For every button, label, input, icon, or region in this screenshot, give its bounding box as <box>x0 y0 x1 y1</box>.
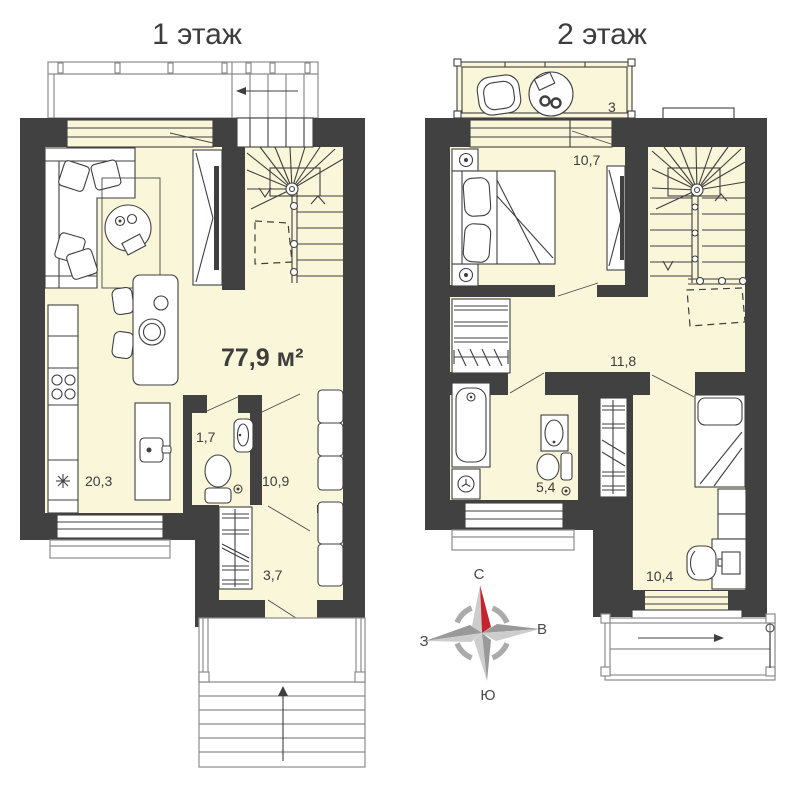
armchair-icon <box>476 73 523 116</box>
room-label-kitchen-living: 20,3 <box>85 473 112 489</box>
tv-unit-floor2-icon <box>607 166 625 270</box>
kitchen-island-icon <box>135 403 171 500</box>
closet-icon-floor2 <box>600 398 627 497</box>
floorplan-page: 1 этаж <box>0 0 800 791</box>
desk-chair-icon <box>687 546 716 580</box>
compass-label-east: В <box>537 621 547 638</box>
shelf-icon <box>718 489 746 539</box>
balcony-table-icon <box>529 72 573 116</box>
room-label-hall-floor1: 10,9 <box>262 473 289 489</box>
porch-steps <box>199 618 365 767</box>
nightstand-icon-2 <box>452 264 478 286</box>
hall-closet-icon <box>318 390 343 586</box>
desk-icon <box>712 539 746 589</box>
fridge-icon <box>56 474 70 488</box>
balcony-bottom-floor2 <box>601 614 775 680</box>
floor1-title: 1 этаж <box>152 18 242 51</box>
compass-label-north: С <box>474 566 485 583</box>
room-label-balcony: 3 <box>608 99 616 115</box>
room-label-bedroom-bottom: 10,4 <box>646 568 673 584</box>
room-label-closet-floor1: 3,7 <box>263 567 283 583</box>
washing-machine-icon <box>452 469 480 499</box>
compass-label-west: З <box>419 633 428 650</box>
window-kitchen-bottom <box>50 515 170 558</box>
terrace-floor1 <box>48 62 318 118</box>
nightstand-icon-1 <box>452 149 478 171</box>
hall-wardrobe-icon <box>452 299 510 373</box>
floor2-title: 2 этаж <box>557 18 647 51</box>
double-bed-icon <box>452 171 555 264</box>
wc-sink-icon <box>234 419 253 452</box>
wardrobe-icon-floor1 <box>219 507 252 589</box>
room-label-bathroom: 5,4 <box>536 479 556 495</box>
balcony-top-floor2: 3 <box>454 59 635 118</box>
room-label-hall-floor2: 11,8 <box>610 353 636 369</box>
floor1-plan: 1 этаж <box>20 18 365 767</box>
floorplan-drawing: 1 этаж <box>0 0 800 791</box>
floor1-total-area-label: 77,9 м² <box>221 344 303 372</box>
room-label-wc: 1,7 <box>196 429 216 445</box>
window-stairs-top <box>237 118 313 147</box>
bathtub-icon <box>452 383 490 467</box>
single-bed-icon <box>695 395 745 487</box>
window-bedroom-top <box>470 120 614 147</box>
window-bathroom <box>452 503 574 550</box>
tv-unit-icon <box>193 150 222 285</box>
compass-label-south: Ю <box>480 687 495 704</box>
vanity-sink-icon <box>541 415 568 451</box>
window-living-top <box>67 120 213 147</box>
compass-rose: С В Ю З <box>419 566 547 704</box>
room-label-bedroom-top: 10,7 <box>573 152 600 168</box>
